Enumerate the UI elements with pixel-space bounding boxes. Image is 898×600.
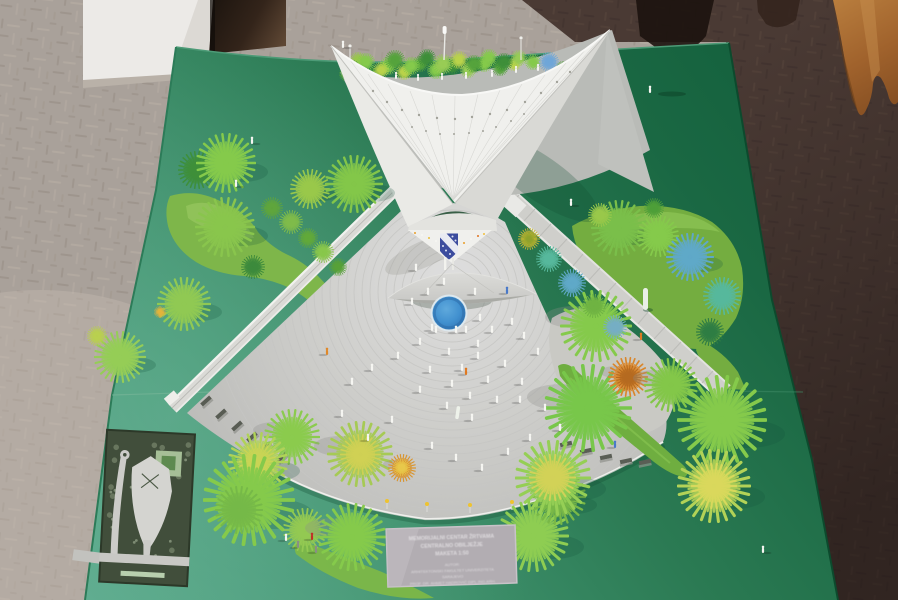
svg-text:MAKETA 1:50: MAKETA 1:50 <box>435 550 469 557</box>
svg-text:SARAJEVO: SARAJEVO <box>442 574 463 580</box>
svg-text:AUTOR:: AUTOR: <box>445 562 460 567</box>
